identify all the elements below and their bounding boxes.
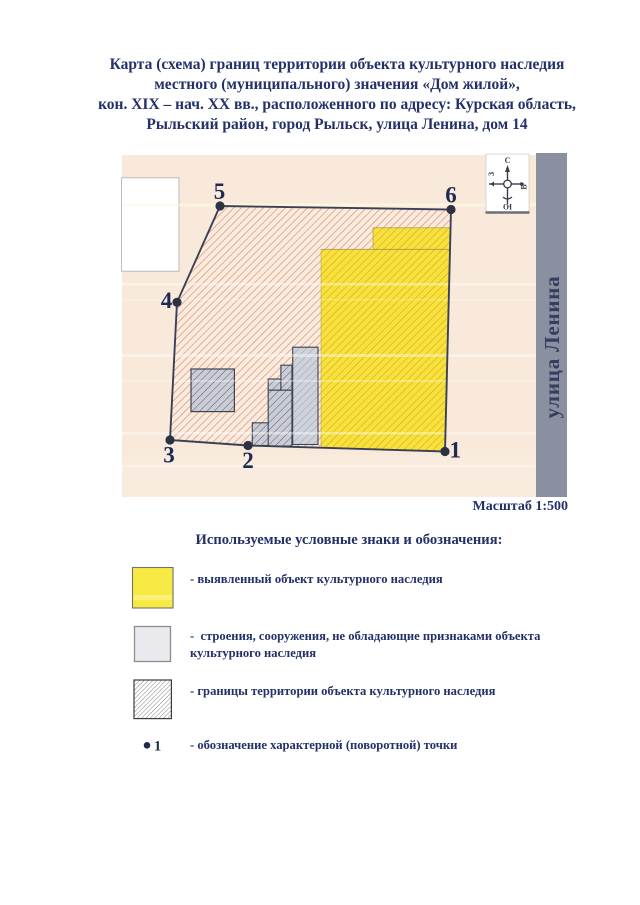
svg-text:4: 4 (161, 288, 173, 313)
svg-text:1: 1 (154, 739, 161, 755)
svg-text:улица Ленина: улица Ленина (540, 276, 564, 419)
svg-text:З: З (487, 172, 496, 176)
svg-text:5: 5 (214, 179, 226, 204)
svg-text:1: 1 (450, 438, 462, 463)
svg-text:6: 6 (445, 183, 457, 208)
svg-text:2: 2 (242, 448, 254, 473)
svg-text:В: В (520, 184, 529, 190)
svg-text:С: С (505, 156, 511, 165)
svg-text:Ю: Ю (503, 202, 512, 211)
svg-text:3: 3 (163, 443, 175, 468)
